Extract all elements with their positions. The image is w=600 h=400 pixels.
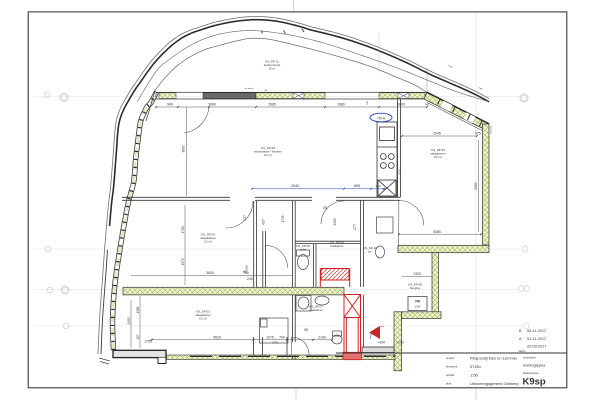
svg-text:3600: 3600 xyxy=(182,145,186,152)
svg-text:05: 05 xyxy=(304,328,308,332)
svg-text:2330: 2330 xyxy=(333,218,337,225)
svg-text:1332: 1332 xyxy=(415,305,421,309)
svg-text:woningtypes: woningtypes xyxy=(523,363,545,368)
svg-text:slaapkamer: slaapkamer xyxy=(430,152,446,156)
svg-text:wc: wc xyxy=(368,250,372,254)
svg-text:3060: 3060 xyxy=(208,103,216,107)
svg-text:895: 895 xyxy=(354,184,360,188)
svg-text:13.1 m²: 13.1 m² xyxy=(199,317,207,320)
svg-text:15.4 m²: 15.4 m² xyxy=(434,156,442,159)
svg-text:woonkamer / keuken: woonkamer / keuken xyxy=(254,150,282,154)
svg-text:05: 05 xyxy=(323,206,327,210)
svg-text:5485: 5485 xyxy=(433,230,441,234)
svg-text:dossiernr: dossiernr xyxy=(446,365,458,369)
svg-text:1332: 1332 xyxy=(413,272,421,276)
svg-text:1375: 1375 xyxy=(272,341,278,345)
svg-text:bladnummer: bladnummer xyxy=(523,371,539,375)
svg-text:1075: 1075 xyxy=(266,335,274,339)
svg-text:1375: 1375 xyxy=(181,258,185,265)
svg-text:3520: 3520 xyxy=(213,335,221,339)
svg-text:06-11-2017: 06-11-2017 xyxy=(527,329,546,333)
svg-text:75+A: 75+A xyxy=(377,116,386,120)
svg-text:2045: 2045 xyxy=(433,132,441,136)
svg-text:437: 437 xyxy=(262,219,266,225)
svg-text:badkamer: badkamer xyxy=(330,244,343,248)
svg-text:VW: VW xyxy=(415,300,420,304)
svg-text:1745: 1745 xyxy=(281,215,285,222)
svg-text:project: project xyxy=(446,356,455,360)
svg-text:Uitvoeringsgereed Ontwerp: Uitvoeringsgereed Ontwerp xyxy=(470,381,519,386)
svg-text:+434: +434 xyxy=(377,341,385,345)
svg-text:3040: 3040 xyxy=(291,184,299,188)
svg-text:+100: +100 xyxy=(396,341,404,345)
svg-text:975: 975 xyxy=(475,132,481,136)
svg-text:berging: berging xyxy=(410,286,420,290)
svg-text:1980: 1980 xyxy=(337,103,345,107)
svg-text:177: 177 xyxy=(353,224,357,230)
svg-text:1:50: 1:50 xyxy=(470,373,479,378)
svg-text:1185: 1185 xyxy=(136,306,140,313)
svg-text:940: 940 xyxy=(167,103,173,107)
svg-text:2985: 2985 xyxy=(268,103,276,107)
svg-text:16 m²: 16 m² xyxy=(269,67,275,70)
svg-text:12.2 m²: 12.2 m² xyxy=(204,240,212,243)
svg-text:5050: 5050 xyxy=(474,182,478,189)
svg-text:240: 240 xyxy=(247,277,253,281)
svg-text:2400: 2400 xyxy=(127,317,131,324)
svg-text:5270: 5270 xyxy=(398,169,402,175)
svg-text:slaapkamer: slaapkamer xyxy=(195,313,211,317)
svg-text:737: 737 xyxy=(243,215,247,221)
svg-text:22-09-2017: 22-09-2017 xyxy=(527,345,546,349)
svg-text:2140: 2140 xyxy=(318,335,326,339)
svg-text:90: 90 xyxy=(243,270,247,274)
svg-text:datum: datum xyxy=(519,350,526,353)
svg-text:07251: 07251 xyxy=(470,364,482,369)
svg-text:Rhapsody Bes en Lemmer: Rhapsody Bes en Lemmer xyxy=(470,356,518,361)
svg-text:onderdeel: onderdeel xyxy=(523,356,536,360)
svg-text:3000: 3000 xyxy=(397,103,405,107)
svg-text:badkamer: badkamer xyxy=(309,308,322,312)
svg-text:3600: 3600 xyxy=(206,271,214,275)
svg-text:K9sp: K9sp xyxy=(523,377,546,388)
svg-text:slaapkamer: slaapkamer xyxy=(200,236,216,240)
svg-text:540: 540 xyxy=(425,104,430,107)
svg-text:buitenruimte: buitenruimte xyxy=(264,63,281,67)
svg-text:1755: 1755 xyxy=(144,340,152,344)
svg-text:fase: fase xyxy=(446,382,452,386)
svg-text:44.1 m²: 44.1 m² xyxy=(264,154,272,157)
svg-text:140: 140 xyxy=(376,184,381,188)
svg-text:toilet: toilet xyxy=(300,248,307,252)
svg-text:schaal: schaal xyxy=(446,373,454,377)
svg-text:407: 407 xyxy=(136,334,140,340)
svg-text:700: 700 xyxy=(279,335,285,339)
svg-text:01-11-2017: 01-11-2017 xyxy=(527,337,546,341)
svg-text:1730: 1730 xyxy=(181,226,185,233)
svg-text:vw kozijn: vw kozijn xyxy=(245,88,255,90)
